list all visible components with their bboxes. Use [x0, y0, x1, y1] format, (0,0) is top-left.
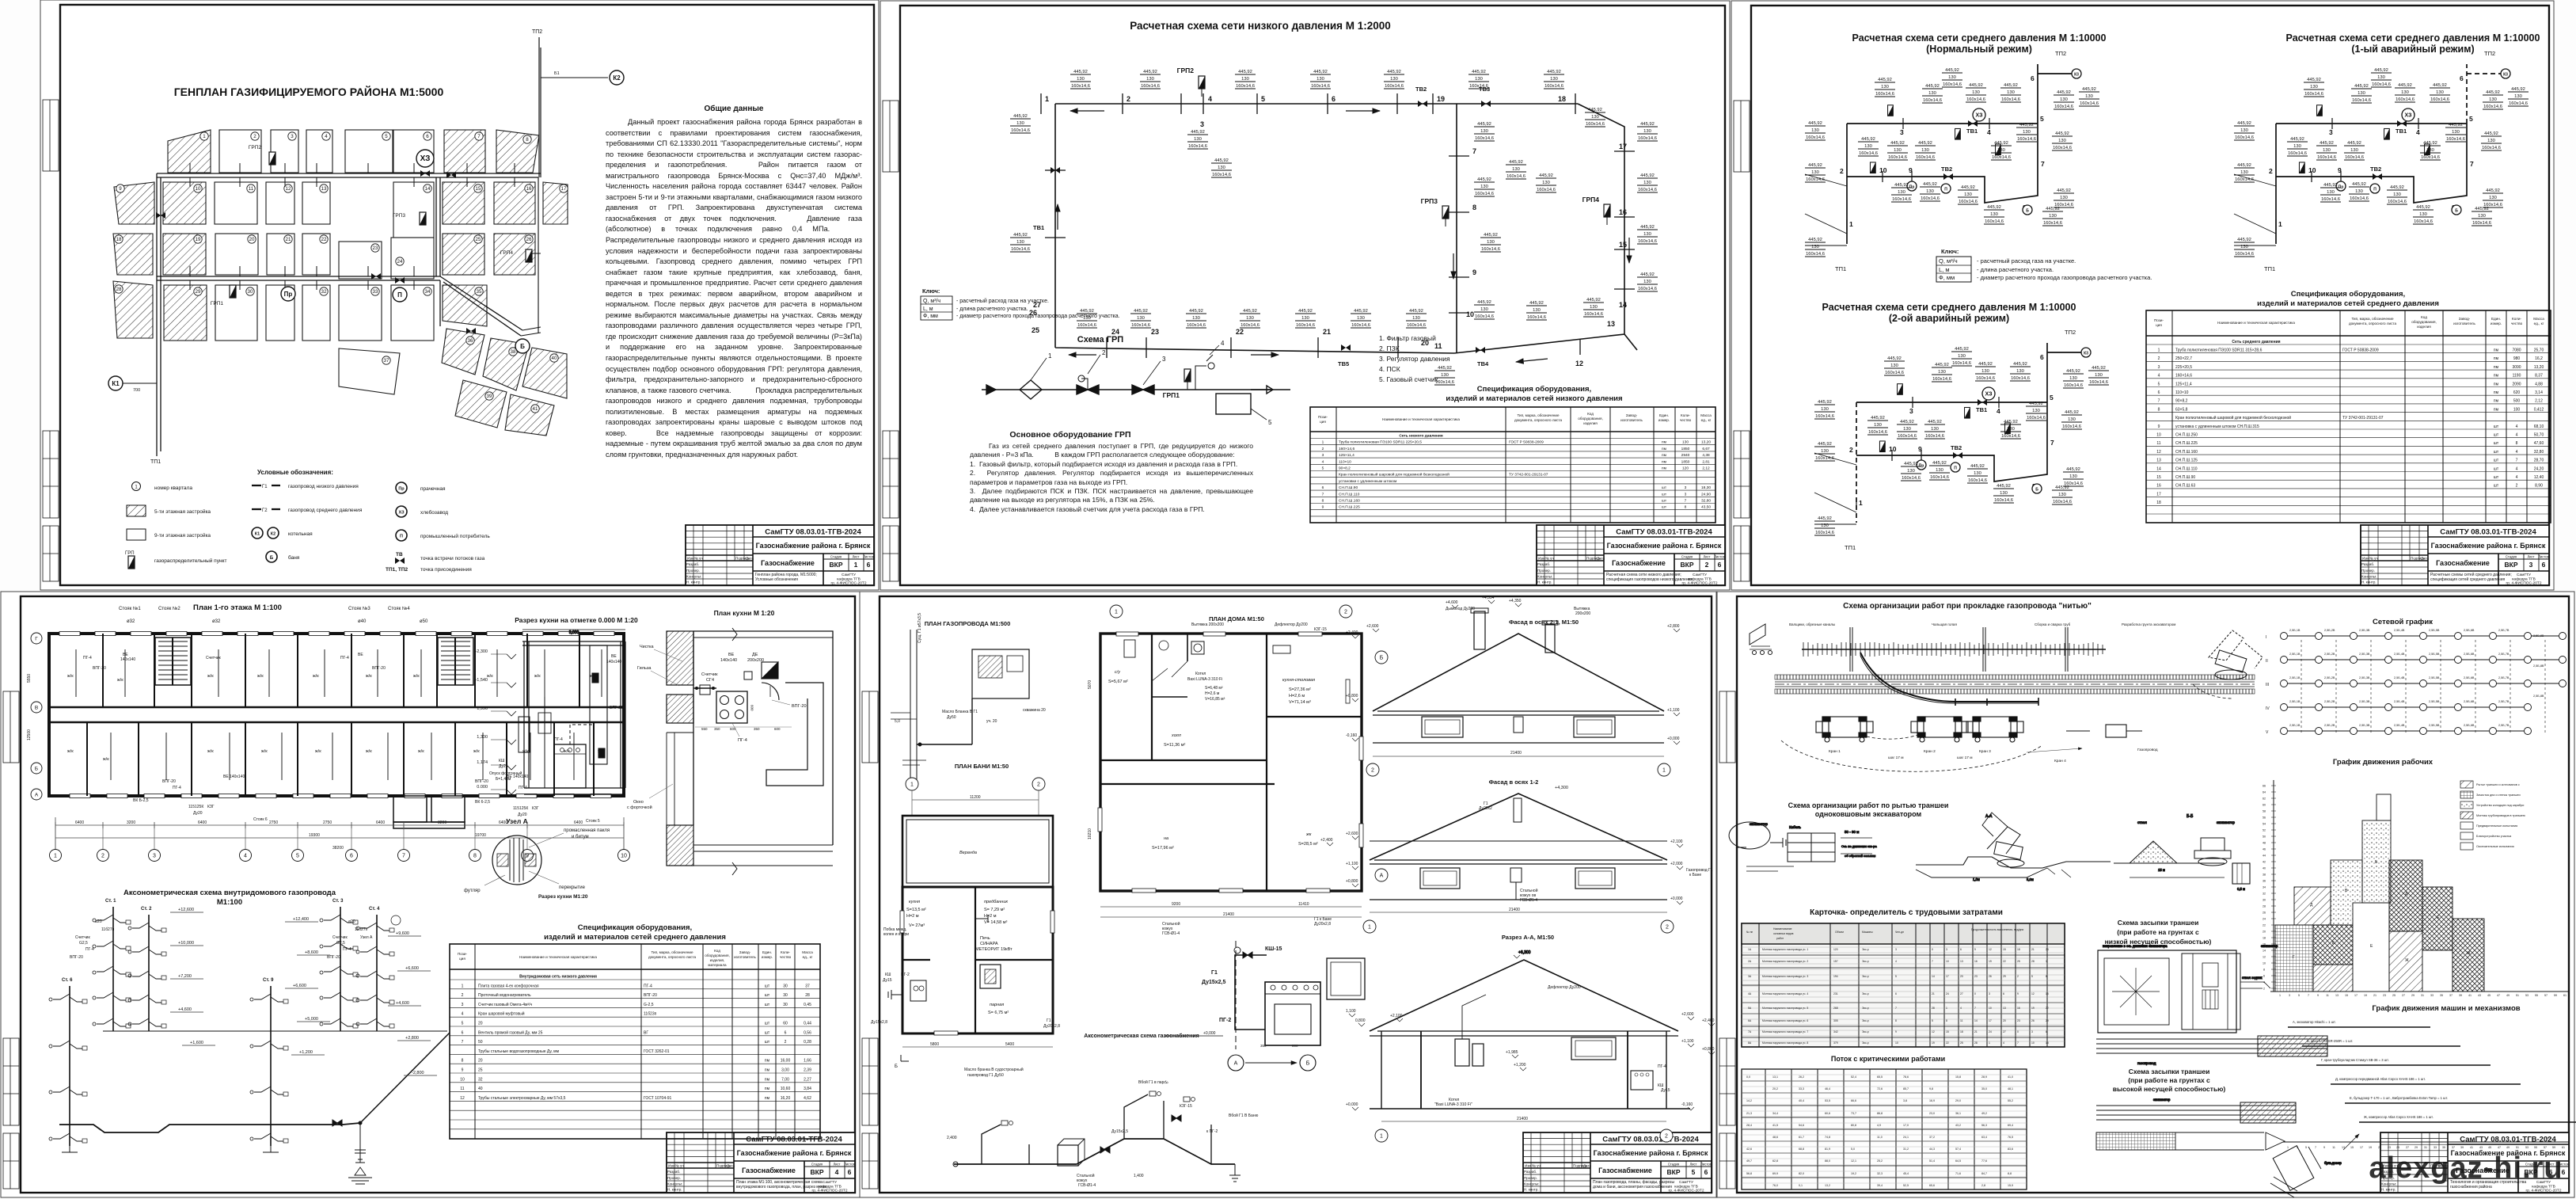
svg-text:2: 2	[1849, 446, 1853, 454]
svg-text:15,9: 15,9	[2008, 1184, 2013, 1187]
svg-text:2090: 2090	[2512, 382, 2521, 386]
svg-text:ХЗ: ХЗ	[1976, 113, 1984, 119]
svg-text:Экс-р: Экс-р	[1862, 975, 1869, 978]
svg-text:5: 5	[385, 134, 388, 139]
svg-text:23: 23	[2383, 994, 2386, 997]
svg-text:ТП1: ТП1	[1835, 265, 1846, 272]
svg-text:Экс-р: Экс-р	[1862, 1041, 1869, 1045]
svg-text:10: 10	[1895, 1041, 1898, 1045]
svg-text:ПЛАН ГАЗОПРОВОДА М1:500: ПЛАН ГАЗОПРОВОДА М1:500	[925, 620, 1011, 627]
svg-text:0,5 м: 0,5 м	[2237, 887, 2245, 891]
svg-text:33: 33	[373, 289, 378, 295]
svg-text:+0,800: +0,800	[1346, 694, 1358, 698]
svg-text:Окончательные испытания: Окончательные испытания	[2476, 845, 2514, 848]
svg-text:ж/к: ж/к	[315, 749, 321, 754]
svg-text:СН.П.Ш.90: СН.П.Ш.90	[2175, 475, 2195, 480]
svg-text:2,5Б,4В: 2,5Б,4В	[2394, 629, 2405, 632]
svg-text:ж/к: ж/к	[418, 749, 424, 754]
svg-text:2А: 2А	[1748, 960, 1752, 963]
svg-text:Ж, компрессор Atlas Copco XAH: Ж, компрессор Atlas Copco XAHS 186 = 1 ш…	[2364, 1115, 2434, 1119]
svg-text:Б1: Б1	[554, 71, 560, 76]
svg-text:11: 11	[2156, 441, 2160, 446]
svg-text:+0,000: +0,000	[1670, 896, 1683, 901]
svg-text:1,400: 1,400	[1134, 1174, 1144, 1178]
svg-text:+1,200: +1,200	[1514, 1063, 1526, 1068]
svg-text:620: 620	[2513, 390, 2521, 395]
svg-text:14: 14	[1932, 975, 1935, 978]
svg-text:ø20: ø20	[95, 919, 102, 924]
svg-text:5: 5	[462, 1022, 464, 1026]
svg-text:ж/к: ж/к	[207, 674, 214, 679]
svg-text:1: 1	[854, 561, 858, 569]
svg-text:20: 20	[1960, 975, 1963, 978]
svg-text:5: 5	[2050, 394, 2054, 402]
svg-text:6: 6	[462, 1030, 464, 1035]
svg-text:32,3: 32,3	[1877, 1172, 1883, 1175]
svg-text:28,4: 28,4	[1746, 1124, 1752, 1127]
svg-text:3: 3	[2529, 561, 2533, 569]
svg-text:1,66: 1,66	[804, 1059, 811, 1064]
svg-text:2,12: 2,12	[2535, 399, 2543, 404]
svg-text:+6,300: +6,300	[1518, 950, 1531, 955]
svg-text:15 м: 15 м	[2158, 868, 2165, 872]
svg-text:П: П	[2373, 188, 2377, 192]
svg-text:Расчетная схема сети среднего: Расчетная схема сети среднего давления М…	[1822, 302, 2076, 313]
svg-text:26: 26	[1989, 975, 1992, 978]
svg-text:+4,600: +4,600	[178, 1007, 192, 1012]
svg-text:Гильза: Гильза	[637, 666, 652, 671]
svg-text:3: 3	[2031, 1030, 2033, 1033]
svg-text:газопровод: газопровод	[2137, 1061, 2156, 1065]
svg-text:17: 17	[2360, 1146, 2363, 1149]
svg-text:4,9: 4,9	[1877, 1124, 1881, 1127]
svg-text:19: 19	[1437, 95, 1445, 103]
svg-text:КЗГ-15: КЗГ-15	[1180, 1104, 1192, 1109]
svg-text:Кран шаровой муфтовый: Кран шаровой муфтовый	[478, 1011, 525, 1017]
svg-text:2,5Б,4В: 2,5Б,4В	[2394, 700, 2405, 703]
svg-text:10: 10	[2308, 166, 2316, 174]
svg-text:2: 2	[2269, 167, 2273, 175]
svg-text:5,0: 5,0	[1851, 1148, 1855, 1151]
svg-text:9: 9	[2323, 1146, 2325, 1149]
svg-text:Узел А: Узел А	[506, 817, 528, 825]
svg-text:шт: шт	[2494, 459, 2499, 463]
svg-text:11: 11	[2332, 1146, 2335, 1149]
svg-text:Baxi LUNA-3 310 Fi: Baxi LUNA-3 310 Fi	[1187, 677, 1222, 682]
svg-text:ПЛАН ДОМА М1:50: ПЛАН ДОМА М1:50	[1209, 615, 1264, 622]
svg-text:(1-ый аварийный режим): (1-ый аварийный режим)	[2351, 44, 2474, 55]
svg-text:11: 11	[1960, 1019, 1963, 1022]
svg-text:47: 47	[2497, 994, 2500, 997]
svg-text:Г: Г	[2293, 955, 2295, 960]
svg-text:11: 11	[1434, 342, 1442, 350]
svg-text:12: 12	[1989, 948, 1992, 951]
svg-text:+2,800: +2,800	[1667, 624, 1680, 629]
svg-text:ТП1, ТП2: ТП1, ТП2	[386, 567, 408, 573]
svg-text:Б=1,44м: Б=1,44м	[496, 777, 511, 782]
svg-text:25: 25	[1960, 1041, 1963, 1045]
svg-text:82,0: 82,0	[1799, 1172, 1804, 1175]
svg-text:Един.: Един.	[1659, 413, 1669, 417]
svg-text:27: 27	[1960, 992, 1963, 995]
svg-text:2: 2	[1127, 95, 1130, 103]
svg-text:85,7: 85,7	[1903, 1087, 1909, 1091]
svg-text:77,6: 77,6	[1981, 1159, 1987, 1163]
svg-text:23: 23	[373, 246, 378, 251]
svg-text:26: 26	[2263, 912, 2266, 915]
svg-text:ж/к: ж/к	[117, 678, 123, 683]
svg-text:Монтаж трубопроводов в траншею: Монтаж трубопроводов в траншею	[2476, 814, 2525, 817]
svg-text:6: 6	[350, 854, 353, 859]
svg-text:1190: 1190	[2513, 374, 2521, 379]
svg-text:ж/к: ж/к	[366, 749, 372, 754]
svg-text:шт: шт	[2494, 450, 2499, 455]
svg-text:6: 6	[1895, 992, 1897, 995]
svg-text:ВПГ-20: ВПГ-20	[644, 993, 657, 998]
svg-text:2,39: 2,39	[804, 1068, 811, 1073]
svg-text:14: 14	[425, 186, 431, 192]
svg-text:шаг 17 м: шаг 17 м	[1888, 756, 1904, 760]
svg-text:20: 20	[249, 237, 255, 242]
svg-text:Спецификация оборудования,: Спецификация оборудования,	[2291, 290, 2405, 299]
svg-text:4: 4	[1221, 340, 1225, 347]
svg-text:6А: 6А	[1748, 1019, 1752, 1022]
svg-text:К3: К3	[2503, 73, 2508, 78]
svg-text:2,5Б,5В: 2,5Б,5В	[2429, 700, 2440, 703]
svg-text:10,60: 10,60	[781, 1087, 791, 1091]
svg-text:5550: 5550	[27, 674, 32, 683]
svg-text:32: 32	[478, 1077, 483, 1082]
svg-text:37: 37	[805, 984, 810, 988]
svg-text:54,6: 54,6	[1799, 1124, 1804, 1127]
svg-text:47,60: 47,60	[2534, 441, 2544, 446]
svg-text:ТП2: ТП2	[532, 29, 542, 35]
svg-text:21: 21	[2373, 994, 2377, 997]
svg-text:10: 10	[2263, 962, 2266, 965]
svg-text:ХЗ: ХЗ	[2405, 113, 2413, 119]
svg-text:52,4: 52,4	[1851, 1075, 1856, 1079]
svg-text:6: 6	[1960, 948, 1962, 951]
svg-text:4А: 4А	[1748, 992, 1752, 995]
svg-text:120: 120	[1833, 948, 1838, 951]
svg-text:Схема организации работ по рыт: Схема организации работ по рытью траншеи	[1788, 801, 1949, 809]
svg-text:ТВ1: ТВ1	[1966, 128, 1978, 135]
svg-text:пм: пм	[1662, 454, 1666, 458]
svg-text:S=13,5 м²: S=13,5 м²	[906, 908, 926, 912]
svg-text:К2: К2	[271, 532, 275, 537]
svg-text:13: 13	[2335, 994, 2339, 997]
svg-text:13,20: 13,20	[1701, 440, 1711, 445]
svg-text:80,8: 80,8	[1851, 1124, 1856, 1127]
svg-text:1850: 1850	[1681, 447, 1690, 451]
svg-text:Монтаж наружного газопровода у: Монтаж наружного газопровода уч. 2	[1762, 960, 1808, 963]
svg-text:ГРП1: ГРП1	[211, 301, 224, 306]
svg-text:18: 18	[1960, 1030, 1963, 1033]
svg-text:+1,100: +1,100	[1346, 862, 1358, 866]
svg-text:0: 0	[1974, 992, 1976, 995]
svg-text:22: 22	[321, 237, 327, 242]
svg-text:+4,600: +4,600	[1446, 600, 1458, 605]
svg-text:Трубы стальные водогазопроводн: Трубы стальные водогазопроводные Ду, мм	[478, 1049, 560, 1054]
svg-text:Б: Б	[520, 343, 525, 350]
svg-text:Ф, мм: Ф, мм	[923, 314, 938, 319]
svg-text:29: 29	[2411, 994, 2415, 997]
svg-text:43: 43	[2478, 994, 2481, 997]
svg-text:-0,160: -0,160	[1346, 733, 1357, 738]
svg-text:350: 350	[754, 727, 760, 731]
svg-text:пм: пм	[2494, 382, 2499, 386]
svg-text:11б23п: 11б23п	[644, 1012, 657, 1017]
svg-text:- длина расчетного участка.: - длина расчетного участка.	[956, 306, 1028, 312]
svg-text:Н=2,6 м: Н=2,6 м	[1205, 691, 1220, 696]
svg-text:43: 43	[2479, 1146, 2483, 1149]
svg-text:ПГ-4: ПГ-4	[644, 984, 652, 988]
svg-text:2: 2	[101, 854, 104, 859]
svg-text:Сетевой график: Сетевой график	[2373, 618, 2433, 626]
svg-text:21400: 21400	[1223, 912, 1234, 917]
svg-text:3: 3	[2289, 994, 2290, 997]
svg-text:29,0: 29,0	[1955, 1099, 1961, 1102]
svg-text:пм: пм	[1662, 460, 1666, 464]
svg-text:СН.П.Ш.110: СН.П.Ш.110	[2175, 466, 2198, 471]
svg-text:2,5Б,7В: 2,5Б,7В	[2498, 724, 2510, 727]
svg-text:+0,800: +0,800	[1346, 879, 1358, 884]
svg-text:Ст. 2: Ст. 2	[141, 907, 152, 912]
svg-text:Наименование и техническая хар: Наименование и техническая характеристик…	[1382, 417, 1460, 421]
svg-text:СН.П.Ш.225: СН.П.Ш.225	[2175, 441, 2198, 446]
svg-text:3: 3	[2158, 365, 2160, 370]
svg-text:47: 47	[2498, 1146, 2501, 1149]
svg-text:29: 29	[2415, 1146, 2418, 1149]
svg-text:Завод-: Завод-	[2459, 317, 2471, 321]
svg-text:8,90: 8,90	[2535, 484, 2543, 489]
svg-text:Разработка грунта экскаватором: Разработка грунта экскаватором	[2122, 622, 2175, 626]
svg-text:Ду20х2: Ду20х2	[1479, 806, 1492, 811]
svg-text:55,2: 55,2	[2008, 1099, 2013, 1102]
svg-text:Разрез кухни М1:20: Разрез кухни М1:20	[538, 894, 588, 900]
svg-text:6: 6	[426, 134, 429, 139]
svg-text:Экс-р: Экс-р	[1862, 1019, 1869, 1022]
svg-text:5-ти этажная застройка: 5-ти этажная застройка	[154, 508, 211, 515]
svg-text:Счетчик газовый Омега-4м³/ч: Счетчик газовый Омега-4м³/ч	[478, 1002, 532, 1007]
svg-text:ВК 6-2,5: ВК 6-2,5	[475, 800, 490, 805]
svg-text:СИНАРА: СИНАРА	[980, 942, 998, 946]
svg-text:ТВ2: ТВ2	[1941, 166, 1952, 173]
svg-text:Устройство колодцев под карабр: Устройство колодцев под карабри	[2476, 804, 2524, 807]
svg-text:1: 1	[1368, 925, 1371, 931]
svg-text:(2-ой аварийный режим): (2-ой аварийный режим)	[1889, 313, 2009, 324]
svg-text:32: 32	[2263, 893, 2266, 896]
svg-text:4: 4	[2516, 433, 2518, 438]
svg-text:+2,000: +2,000	[1670, 862, 1683, 866]
svg-text:41,0: 41,0	[2008, 1075, 2013, 1079]
svg-text:График движения машин и механи: График движения машин и механизмов	[2372, 1004, 2520, 1013]
svg-text:56: 56	[2263, 816, 2266, 820]
svg-text:4: 4	[462, 1012, 464, 1017]
svg-text:шт: шт	[765, 1022, 770, 1026]
svg-text:высокой несущей способностью): высокой несущей способностью)	[2113, 1085, 2226, 1093]
svg-text:5: 5	[1932, 1019, 1933, 1022]
svg-text:Ду20х2,8: Ду20х2,8	[1043, 1024, 1060, 1029]
svg-text:Окно: Окно	[633, 800, 644, 805]
svg-text:чество: чество	[780, 955, 792, 959]
svg-text:52: 52	[2263, 829, 2266, 832]
svg-text:56,3: 56,3	[1981, 1124, 1987, 1127]
svg-text:2,5Б,1В: 2,5Б,1В	[2289, 724, 2301, 727]
svg-text:14: 14	[1619, 301, 1627, 309]
svg-text:68,8: 68,8	[1799, 1148, 1804, 1151]
svg-text:23,0: 23,0	[1929, 1112, 1935, 1115]
svg-text:Н=2 м: Н=2 м	[984, 914, 997, 919]
svg-text:ХЗ: ХЗ	[1985, 392, 1993, 398]
svg-text:20: 20	[478, 1059, 483, 1064]
svg-text:69,4: 69,4	[2008, 1124, 2013, 1127]
svg-text:(при работе на грунтах с: (при работе на грунтах с	[2128, 1076, 2210, 1084]
svg-text:ГРП3: ГРП3	[1421, 197, 1438, 205]
svg-text:II: II	[2266, 659, 2268, 664]
svg-text:3200: 3200	[438, 820, 446, 825]
svg-text:66,6: 66,6	[1851, 1099, 1856, 1102]
svg-text:28: 28	[805, 993, 810, 998]
svg-text:Д, компрессор передвижной Atla: Д, компрессор передвижной Atlas Copco XA…	[2335, 1077, 2426, 1081]
svg-text:Схема организации работ при пр: Схема организации работ при прокладке га…	[1843, 601, 2092, 611]
svg-text:Монтаж наружного газопровода у: Монтаж наружного газопровода уч. 4	[1762, 992, 1808, 995]
svg-text:2750: 2750	[323, 820, 332, 825]
svg-text:35: 35	[2440, 994, 2443, 997]
svg-text:Внутридомовая сеть низкого дав: Внутридомовая сеть низкого давления	[519, 975, 597, 980]
svg-text:Монтаж наружного газопровода у: Монтаж наружного газопровода уч. 8	[1762, 1041, 1808, 1045]
svg-text:0,0: 0,0	[1746, 1075, 1750, 1079]
svg-text:140х140: 140х140	[120, 657, 135, 662]
svg-text:Стояк 6: Стояк 6	[253, 817, 268, 822]
svg-text:11б27п: 11б27п	[355, 927, 368, 932]
svg-text:уч. 20: уч. 20	[986, 719, 997, 724]
svg-text:Един.: Един.	[2491, 317, 2501, 321]
svg-text:3: 3	[2297, 1146, 2298, 1149]
svg-text:-0,160: -0,160	[1681, 1102, 1693, 1107]
svg-text:2,5Б,2В: 2,5Б,2В	[2324, 653, 2335, 656]
svg-text:305: 305	[1833, 1019, 1838, 1022]
svg-text:14: 14	[1974, 1019, 1978, 1022]
svg-text:20: 20	[478, 1022, 483, 1026]
svg-text:5: 5	[2305, 1146, 2307, 1149]
svg-text:ТП2: ТП2	[2484, 50, 2495, 57]
svg-text:3090: 3090	[2512, 365, 2521, 370]
svg-text:40,4: 40,4	[1799, 1099, 1804, 1102]
svg-text:2,5Б,8В: 2,5Б,8В	[2533, 634, 2544, 638]
svg-text:III: III	[2266, 683, 2269, 687]
svg-text:8,37: 8,37	[2535, 374, 2543, 379]
svg-text:4: 4	[1895, 960, 1897, 963]
svg-text:изделий и материалов сетей низ: изделий и материалов сетей низкого давле…	[1446, 394, 1622, 403]
svg-text:13: 13	[1607, 320, 1615, 328]
svg-text:550: 550	[701, 727, 708, 731]
svg-text:11410: 11410	[1298, 902, 1309, 907]
svg-text:19700: 19700	[475, 833, 486, 838]
svg-text:ГРП4: ГРП4	[500, 250, 514, 256]
svg-text:41: 41	[2470, 1146, 2473, 1149]
svg-text:16,9: 16,9	[1929, 1099, 1935, 1102]
svg-text:12500: 12500	[27, 729, 32, 740]
svg-text:П: П	[1944, 188, 1947, 192]
svg-text:Ключ:: Ключ:	[922, 287, 940, 295]
svg-text:19,2: 19,2	[1851, 1172, 1856, 1175]
svg-text:0,45: 0,45	[804, 1003, 811, 1007]
svg-text:шт: шт	[1662, 506, 1667, 510]
svg-text:Завод-: Завод-	[1626, 413, 1638, 417]
svg-text:+6,600: +6,600	[405, 966, 419, 971]
svg-text:изделия: изделия	[2417, 325, 2431, 329]
svg-text:15: 15	[1946, 1030, 1949, 1033]
svg-text:45: 45	[2487, 994, 2491, 997]
svg-text:140х140: 140х140	[720, 658, 737, 663]
svg-text:+1,600: +1,600	[190, 1041, 203, 1045]
svg-text:+1,100: +1,100	[1667, 708, 1680, 713]
svg-text:53: 53	[2525, 994, 2529, 997]
svg-text:7: 7	[2470, 160, 2474, 168]
svg-text:Пози-: Пози-	[2154, 318, 2164, 322]
svg-text:2,5Б,6В: 2,5Б,6В	[2464, 653, 2475, 656]
svg-text:ж/к: ж/к	[473, 749, 480, 754]
svg-text:125×11,4: 125×11,4	[2175, 382, 2192, 386]
svg-text:шт: шт	[1662, 500, 1667, 504]
svg-text:5: 5	[1261, 95, 1265, 103]
svg-text:ВПГ-20: ВПГ-20	[610, 706, 623, 710]
svg-text:Б: Б	[35, 766, 38, 771]
svg-text:Завод-: Завод-	[739, 950, 751, 954]
svg-text:13: 13	[2156, 459, 2161, 463]
svg-text:24: 24	[1946, 992, 1949, 995]
svg-text:шт: шт	[765, 1030, 770, 1035]
svg-text:ПГ-2: ПГ-2	[901, 973, 910, 977]
svg-text:1. Фильтр газовый: 1. Фильтр газовый	[1379, 334, 1436, 342]
svg-text:2940: 2940	[1681, 453, 1690, 458]
svg-text:Г, кран-трубоукладчик Стимул S: Г, кран-трубоукладчик Стимул SB-36 = 3 ш…	[2321, 1058, 2389, 1062]
svg-text:5: 5	[296, 854, 299, 859]
svg-text:25,2: 25,2	[1877, 1159, 1883, 1163]
svg-text:Наименование: Наименование	[1773, 927, 1792, 931]
svg-text:Счетчик: Счетчик	[206, 656, 221, 660]
svg-text:Б: Б	[2026, 209, 2029, 214]
svg-text:Вбой Г1 в парను: Вбой Г1 в парను	[1138, 1079, 1168, 1085]
svg-text:12: 12	[2156, 450, 2161, 455]
svg-text:194: 194	[1833, 975, 1838, 978]
svg-text:18: 18	[2263, 937, 2266, 940]
svg-text:3: 3	[1162, 356, 1166, 363]
svg-text:3: 3	[462, 1003, 464, 1007]
svg-text:Ст. 1: Ст. 1	[105, 899, 116, 904]
svg-text:перекрытие: перекрытие	[559, 885, 586, 890]
svg-text:к Бане: к Бане	[1689, 873, 1701, 877]
svg-text:45,4: 45,4	[1903, 1172, 1909, 1175]
svg-text:16,20: 16,20	[781, 1096, 791, 1101]
svg-text:5. Газовый счетчик: 5. Газовый счетчик	[1379, 375, 1438, 383]
svg-text:+12,400: +12,400	[293, 917, 309, 922]
svg-text:4: 4	[1987, 128, 1991, 136]
svg-text:шт: шт	[2494, 441, 2499, 446]
svg-text:ВЕ 140х140: ВЕ 140х140	[223, 775, 245, 779]
svg-text:19: 19	[1932, 1041, 1935, 1045]
svg-text:29: 29	[196, 289, 201, 295]
svg-text:800: 800	[1292, 1044, 1298, 1048]
svg-text:Монтаж наружного газопровода у: Монтаж наружного газопровода уч. 5	[1762, 1007, 1808, 1010]
svg-text:ВПГ-20: ВПГ-20	[475, 779, 488, 784]
svg-text:1: 1	[462, 984, 464, 988]
svg-text:+4,554: +4,554	[1482, 596, 1495, 600]
svg-text:2: 2	[1371, 768, 1374, 774]
svg-text:- диаметр расчетного прохода г: - диаметр расчетного прохода газопровода…	[956, 314, 1120, 319]
svg-text:ГОСТ Р 50838-2009: ГОСТ Р 50838-2009	[1509, 440, 1544, 445]
